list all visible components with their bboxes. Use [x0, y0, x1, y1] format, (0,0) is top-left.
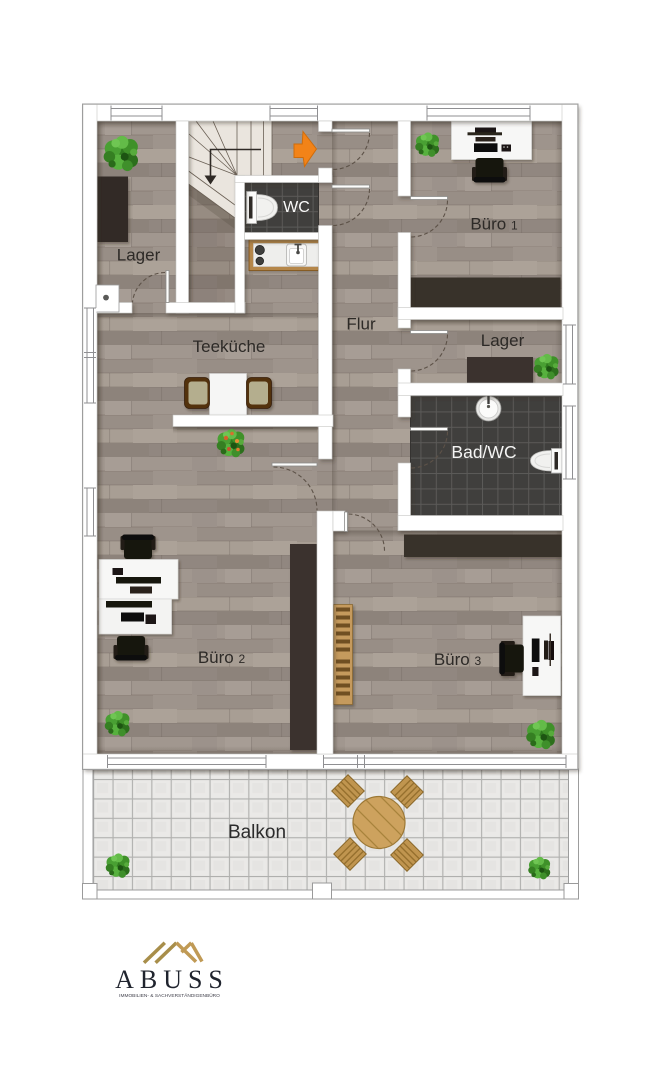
svg-text:IMMOBILIEN- & SACHVERSTÄNDIGEN: IMMOBILIEN- & SACHVERSTÄNDIGENBÜRO — [119, 992, 220, 999]
svg-text:Balkon: Balkon — [228, 822, 286, 843]
svg-text:Teeküche: Teeküche — [193, 337, 266, 356]
svg-text:WC: WC — [283, 199, 310, 216]
svg-text:Büro 1: Büro 1 — [470, 215, 518, 234]
svg-text:Bad/WC: Bad/WC — [451, 442, 516, 462]
svg-text:ABUSS: ABUSS — [115, 965, 229, 994]
svg-text:Büro 2: Büro 2 — [198, 648, 246, 667]
svg-text:Lager: Lager — [481, 331, 525, 350]
svg-text:Lager: Lager — [117, 246, 161, 265]
svg-text:Büro 3: Büro 3 — [434, 650, 482, 669]
svg-text:Flur: Flur — [346, 315, 376, 334]
